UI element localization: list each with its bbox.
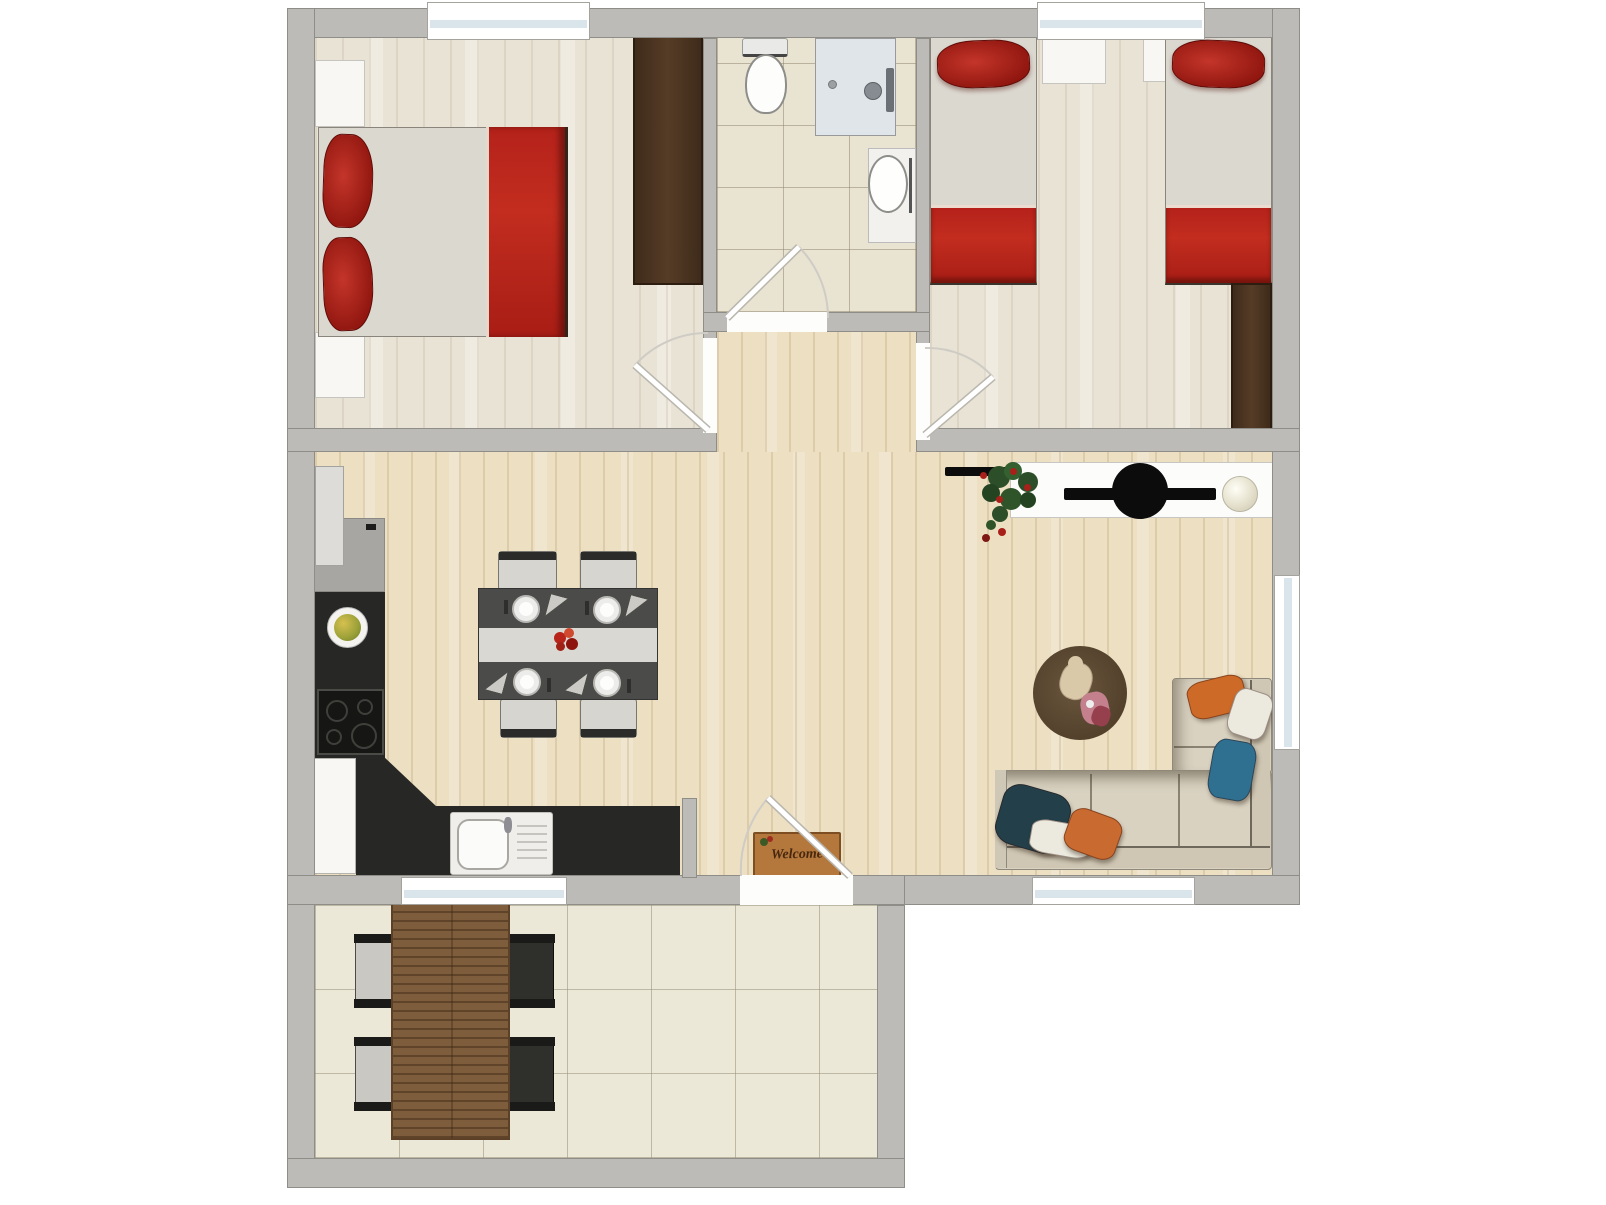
wardrobe-bedroom-double <box>633 35 703 285</box>
single-bed-right-blanket <box>1166 205 1271 283</box>
welcome-mat-text: Welcome <box>755 846 839 863</box>
drainboard-line <box>517 857 547 859</box>
pillow-red <box>1171 38 1266 89</box>
dishwasher <box>311 758 356 874</box>
dining-chair <box>580 551 637 591</box>
wall-right <box>1272 8 1300 905</box>
cutlery <box>585 601 589 615</box>
cutlery <box>547 678 551 692</box>
burner <box>326 700 348 722</box>
kitchen-sink-unit <box>450 812 553 875</box>
window-bedroom-double <box>427 2 590 40</box>
wall-bedroom1-bottom <box>287 428 717 452</box>
dining-chair <box>500 698 557 738</box>
doorway-bedroom-twin <box>916 343 930 440</box>
drainboard-line <box>517 849 547 851</box>
sink-basin <box>457 819 509 870</box>
terrace-chair <box>509 935 554 1007</box>
window-bedroom-twin <box>1037 2 1205 40</box>
wall-terrace-bottom <box>287 1158 905 1188</box>
wardrobe-bedroom-twin <box>1231 283 1272 452</box>
plant <box>980 462 1055 547</box>
wall-bedroom2-bottom <box>916 428 1300 452</box>
window-living-bottom <box>1032 877 1195 905</box>
burner <box>351 723 377 749</box>
burner <box>357 699 373 715</box>
dining-chair <box>498 551 557 591</box>
cutlery <box>627 679 631 693</box>
tv-bar-center <box>1064 488 1216 500</box>
burner <box>326 729 342 745</box>
pillow-red <box>321 236 374 332</box>
nightstand <box>315 60 365 127</box>
shower-head-icon <box>864 82 882 100</box>
pillow-red <box>936 38 1031 89</box>
wall-terrace-right <box>877 905 905 1188</box>
cutlery <box>504 600 508 614</box>
dining-chair <box>580 698 637 738</box>
floor-hallway <box>717 312 916 452</box>
toilet-bowl <box>745 54 787 114</box>
drainboard-line <box>517 841 547 843</box>
double-bed-blanket <box>486 127 568 337</box>
window-living-right <box>1274 575 1300 750</box>
nightstand <box>1042 38 1106 84</box>
drainboard-line <box>517 833 547 835</box>
wall-stub-kitchen <box>682 798 697 878</box>
single-bed-left-blanket <box>931 205 1036 283</box>
cooktop <box>317 689 384 755</box>
fruit-bowl <box>334 614 361 641</box>
terrace-table <box>391 902 510 1140</box>
flower-centerpiece <box>552 628 580 654</box>
teddy-bear-head <box>1068 656 1083 671</box>
doorway-terrace <box>740 875 853 905</box>
washbasin <box>868 155 908 213</box>
sphere-lamp <box>1222 476 1258 512</box>
wall-left <box>287 8 315 1188</box>
sink-faucet <box>504 817 512 833</box>
shower-drain <box>828 80 837 89</box>
plate <box>513 668 541 696</box>
plate <box>593 669 621 697</box>
nightstand <box>315 332 365 398</box>
plate <box>512 595 540 623</box>
drainboard-line <box>517 825 547 827</box>
doorway-bathroom <box>727 312 827 332</box>
cushion-seam <box>1178 774 1180 846</box>
welcome-mat: Welcome <box>753 832 841 878</box>
mat-flower-icon <box>767 836 773 842</box>
washbasin-tap <box>909 158 912 213</box>
window-kitchen-terrace <box>401 877 567 905</box>
terrace-chair <box>509 1038 554 1110</box>
counter-handle <box>366 524 376 530</box>
floor-plan: Welcome <box>0 0 1606 1205</box>
shower-fixture-bar <box>886 68 894 112</box>
plate <box>593 596 621 624</box>
shower <box>815 38 896 136</box>
doorway-bedroom-double <box>703 338 717 433</box>
fridge <box>315 466 344 566</box>
toy-speck <box>1086 700 1094 708</box>
